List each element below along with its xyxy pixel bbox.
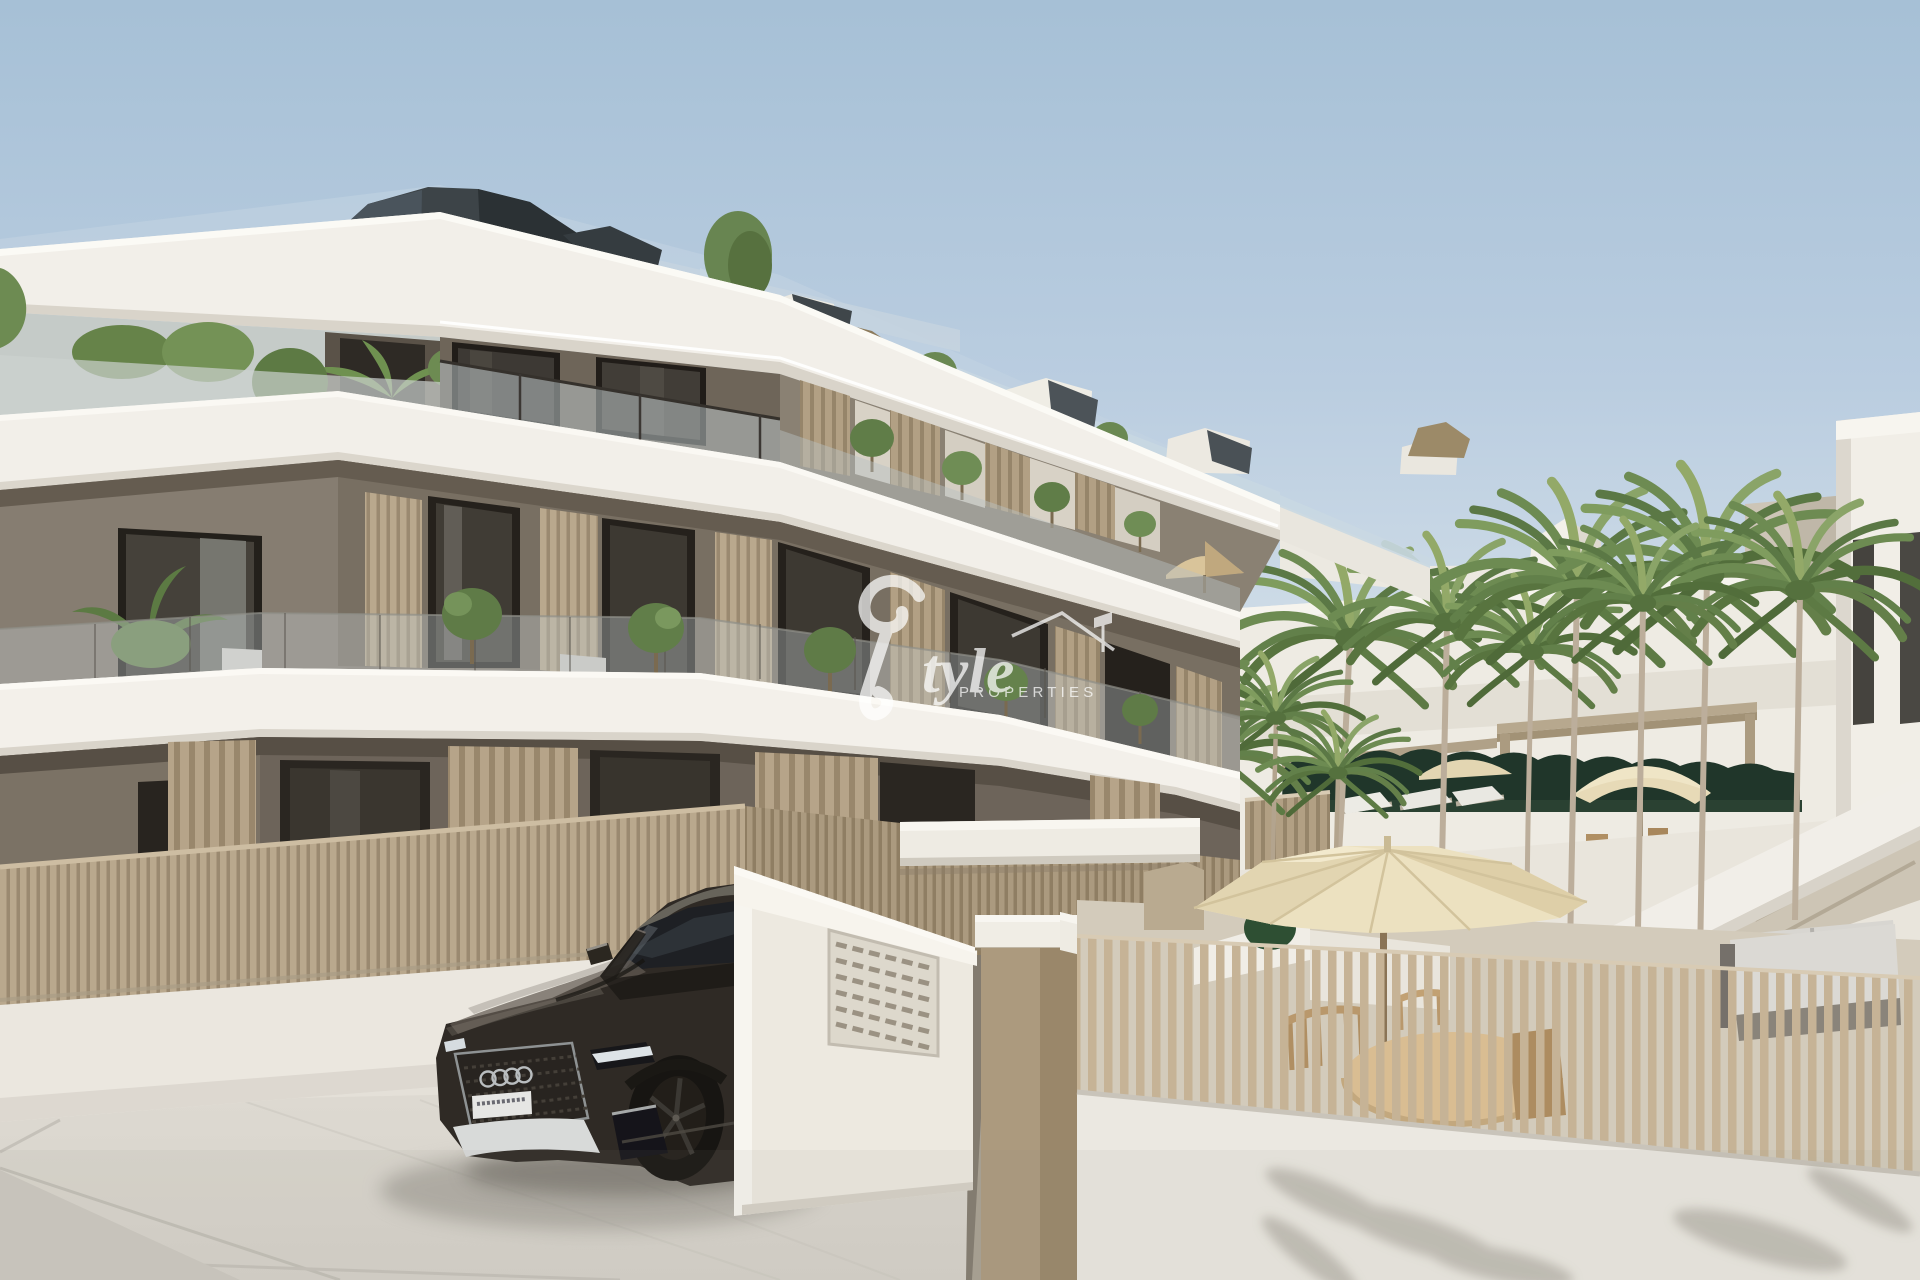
svg-text:PROPERTIES: PROPERTIES [959, 684, 1097, 701]
